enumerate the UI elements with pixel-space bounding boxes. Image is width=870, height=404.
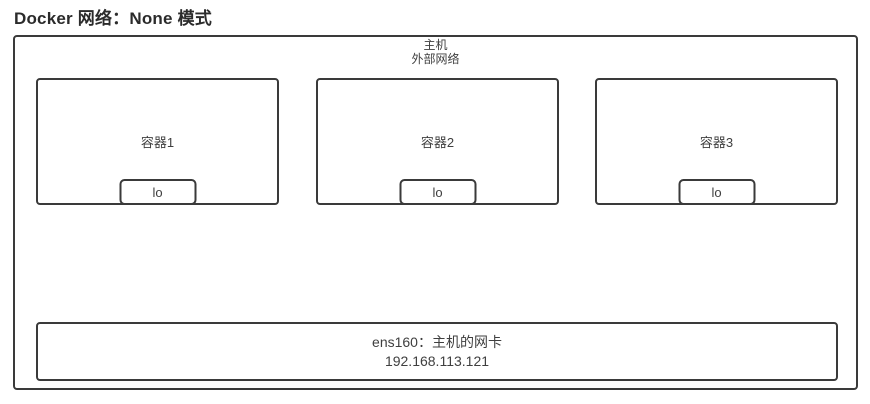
container-3-loopback-label: lo xyxy=(711,185,721,200)
container-1-label: 容器1 xyxy=(141,132,174,151)
diagram-canvas: Docker 网络：None 模式 主机 外部网络 容器1 lo 容器2 lo … xyxy=(0,0,870,404)
container-box-2: 容器2 lo xyxy=(316,78,559,205)
host-nic-box: ens160：主机的网卡 192.168.113.121 xyxy=(36,322,838,381)
container-3-loopback-box: lo xyxy=(678,179,755,205)
container-2-loopback-box: lo xyxy=(399,179,476,205)
host-label-line2: 外部网络 xyxy=(15,52,856,66)
container-3-label: 容器3 xyxy=(700,132,733,151)
container-box-1: 容器1 lo xyxy=(36,78,279,205)
host-box: 主机 外部网络 容器1 lo 容器2 lo 容器3 lo ens160：主机的网… xyxy=(13,35,858,390)
container-2-loopback-label: lo xyxy=(432,185,442,200)
container-2-label: 容器2 xyxy=(421,132,454,151)
container-1-loopback-box: lo xyxy=(119,179,196,205)
container-box-3: 容器3 lo xyxy=(595,78,838,205)
host-label: 主机 外部网络 xyxy=(15,38,856,66)
nic-ip-line2: 192.168.113.121 xyxy=(385,352,489,371)
diagram-title: Docker 网络：None 模式 xyxy=(14,4,212,29)
host-label-line1: 主机 xyxy=(15,38,856,52)
nic-label-line1: ens160：主机的网卡 xyxy=(372,333,502,352)
container-1-loopback-label: lo xyxy=(152,185,162,200)
